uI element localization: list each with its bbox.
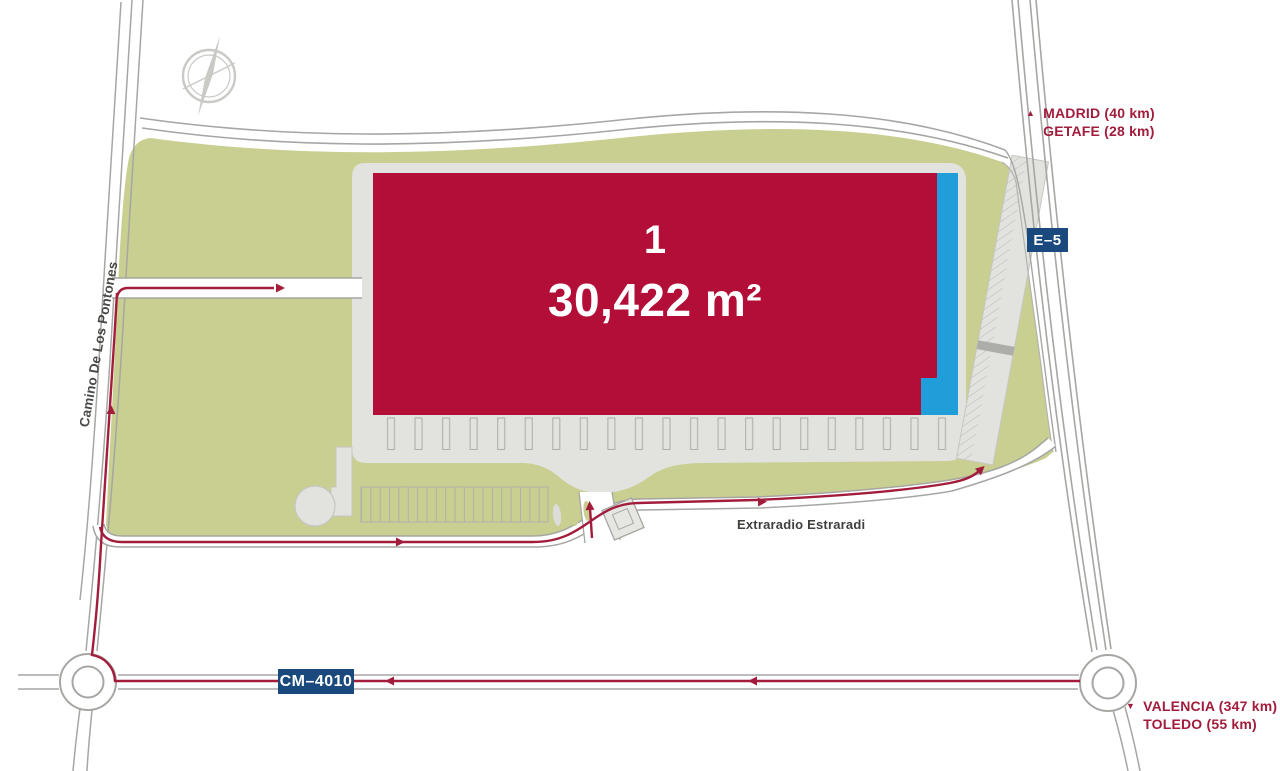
north-arrow-icon: ▲ bbox=[1026, 109, 1035, 141]
roundabout-west bbox=[60, 654, 116, 771]
building-footprint[interactable] bbox=[373, 173, 937, 415]
north-destinations: ▲ MADRID (40 km) GETAFE (28 km) bbox=[1026, 104, 1155, 141]
destination-valencia: VALENCIA (347 km) bbox=[1143, 697, 1277, 715]
e5-badge: E–5 bbox=[1027, 228, 1068, 252]
car-parking-row bbox=[361, 487, 548, 522]
inner-street-label: Extraradio Estraradi bbox=[737, 517, 865, 532]
building-unit-1[interactable] bbox=[373, 173, 958, 415]
truck-bays-row bbox=[377, 417, 955, 452]
destination-getafe: GETAFE (28 km) bbox=[1043, 122, 1155, 140]
south-destinations: ▼ VALENCIA (347 km) TOLEDO (55 km) bbox=[1126, 697, 1277, 734]
site-plan: Camino De Los Pontones Extraradio Estrar… bbox=[0, 0, 1280, 771]
compass-icon bbox=[183, 36, 235, 116]
destination-toledo: TOLEDO (55 km) bbox=[1143, 715, 1277, 733]
south-arrow-icon: ▼ bbox=[1126, 702, 1135, 734]
loading-dock-strip bbox=[937, 173, 958, 415]
circular-pad bbox=[295, 486, 335, 526]
loading-dock-step bbox=[921, 378, 937, 415]
cm4010-badge: CM–4010 bbox=[278, 669, 354, 694]
destination-madrid: MADRID (40 km) bbox=[1043, 104, 1155, 122]
